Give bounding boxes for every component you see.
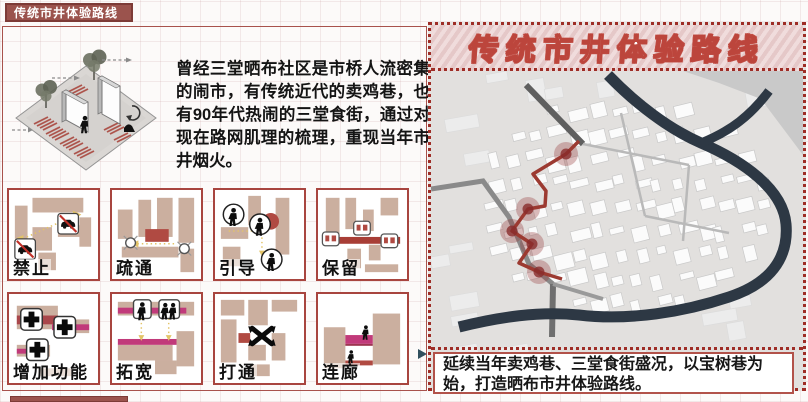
strategy-card-prohibit: 禁止 [7, 188, 100, 281]
strategy-label: 拓宽 [116, 363, 154, 382]
iso-plaza-illustration [8, 32, 164, 184]
strategy-card-widen: 拓宽 [110, 292, 203, 385]
strategy-card-guide: 引导 [213, 188, 306, 281]
strategy-grid: 禁止 疏通 [7, 188, 419, 385]
strategy-label: 疏通 [116, 259, 154, 278]
strategy-card-dredge: 疏通 [110, 188, 203, 281]
strategy-card-preserve: 保留 [316, 188, 409, 281]
dotted-divider [431, 347, 803, 350]
strategy-label: 连廊 [322, 363, 360, 382]
caption-text: 延续当年卖鸡巷、三堂食街盛况，以宝树巷为始，打造晒布市井体验路线。 [443, 356, 763, 393]
caption-box: 延续当年卖鸡巷、三堂食街盛况，以宝树巷为始，打造晒布市井体验路线。 [433, 352, 794, 394]
strategy-label: 引导 [219, 259, 257, 278]
section-title-tab: 传统市井体验路线 [5, 3, 133, 22]
route-panel-title: 传统市井体验路线 [467, 25, 766, 69]
route-node-core [523, 204, 534, 215]
next-section-tab [10, 396, 128, 402]
intro-paragraph: 曾经三堂晒布社区是市桥人流密集的闹市，有传统近代的卖鸡巷，也有90年代热闹的三堂… [176, 58, 430, 173]
no-car-icon [15, 239, 36, 260]
route-node-core [527, 239, 538, 250]
strategy-label: 保留 [322, 259, 360, 278]
strategy-card-break-through: 打通 [213, 292, 306, 385]
no-car-icon [58, 213, 79, 234]
strategy-label: 打通 [219, 363, 257, 382]
strategy-label: 增加功能 [13, 363, 89, 382]
route-node-core [534, 267, 545, 278]
route-node-core [507, 226, 518, 237]
route-map [431, 71, 803, 388]
corridor-bridge [345, 335, 372, 344]
strategy-card-add-function: 增加功能 [7, 292, 100, 385]
route-panel-title-band: 传统市井体验路线 [431, 25, 803, 71]
shop-icon [322, 232, 339, 246]
shop-icon [354, 221, 371, 235]
shop-icon [381, 234, 398, 248]
strategy-label: 禁止 [13, 259, 51, 278]
break-x-icon [252, 328, 272, 344]
caption-arrow-icon [418, 349, 427, 359]
route-map-wrap [431, 71, 803, 388]
strategy-card-corridor: 连廊 [316, 292, 409, 385]
route-panel: 传统市井体验路线 延续当年卖鸡巷、三堂食街盛况，以宝树巷为始，打造晒布市井 [428, 22, 806, 391]
section-title-text: 传统市井体验路线 [14, 4, 118, 21]
route-node-core [561, 149, 572, 160]
